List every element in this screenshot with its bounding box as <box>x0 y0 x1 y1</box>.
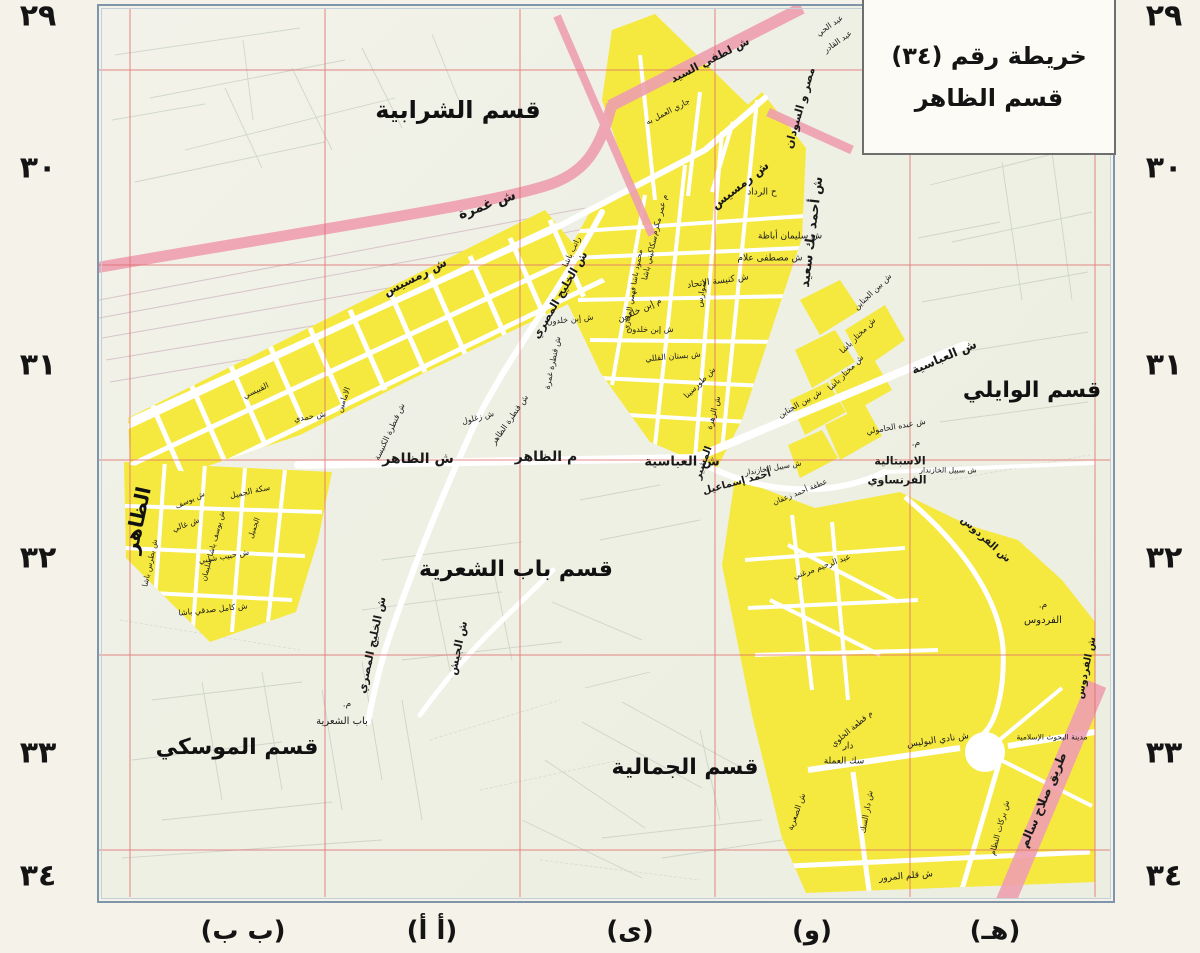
bottom-column-letter: (ب ب) <box>200 916 285 946</box>
margin-number-right: ٣٣ <box>1146 736 1183 771</box>
margin-number-left: ٣٣ <box>20 736 57 771</box>
margin-number-left: ٢٩ <box>20 0 57 34</box>
map-title-box: خريطة رقم (٣٤) قسم الظاهر <box>862 0 1116 155</box>
bottom-column-letter: (و) <box>792 916 832 946</box>
bottom-column-letter: (أ أ) <box>407 916 458 946</box>
bottom-column-letter: (هـ) <box>970 916 1021 946</box>
margin-number-left: ٣٢ <box>20 541 57 576</box>
margin-number-right: ٢٩ <box>1146 0 1183 34</box>
margin-number-right: ٣١ <box>1146 348 1183 383</box>
margin-number-right: ٣٢ <box>1146 541 1183 576</box>
margin-number-right: ٣٠ <box>1146 151 1183 186</box>
map-title-line1: خريطة رقم (٣٤) <box>891 42 1086 70</box>
margin-number-left: ٣٠ <box>20 151 57 186</box>
bottom-column-letter: (ى) <box>606 916 654 946</box>
map-page: قسم الشرابيةقسم الوايليقسم باب الشعريةقس… <box>0 0 1200 953</box>
map-title-line2: قسم الظاهر <box>915 84 1064 112</box>
margin-number-right: ٣٤ <box>1146 859 1183 894</box>
margin-number-left: ٣٤ <box>20 859 57 894</box>
margin-number-left: ٣١ <box>20 348 57 383</box>
